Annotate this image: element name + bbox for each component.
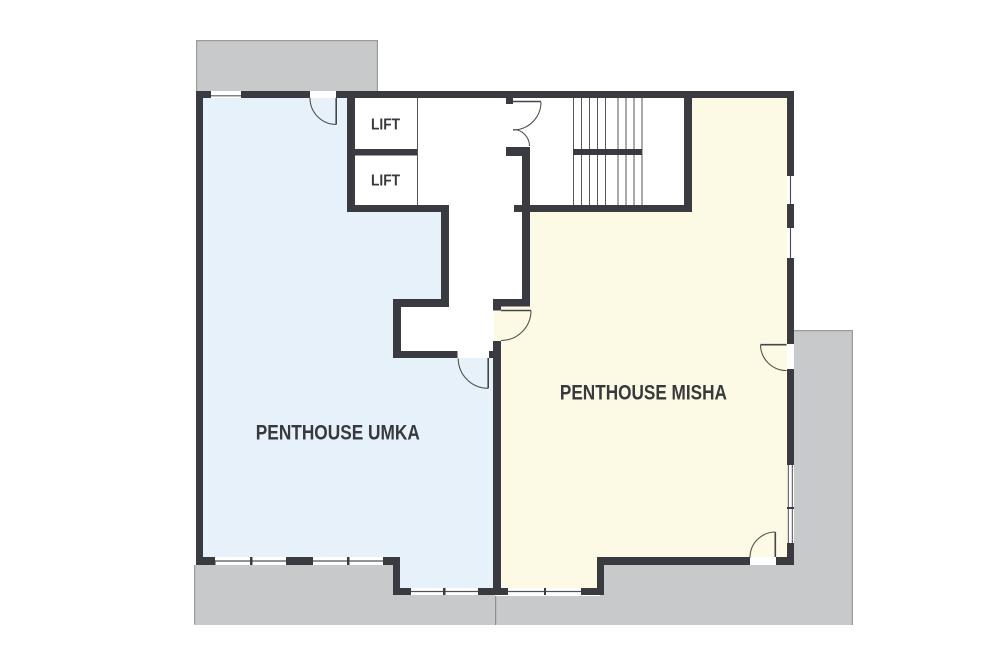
svg-text:PENTHOUSE UMKA: PENTHOUSE UMKA <box>256 421 420 445</box>
svg-text:PENTHOUSE MISHA: PENTHOUSE MISHA <box>560 381 727 405</box>
svg-text:LIFT: LIFT <box>371 173 400 190</box>
svg-text:LIFT: LIFT <box>371 116 400 133</box>
